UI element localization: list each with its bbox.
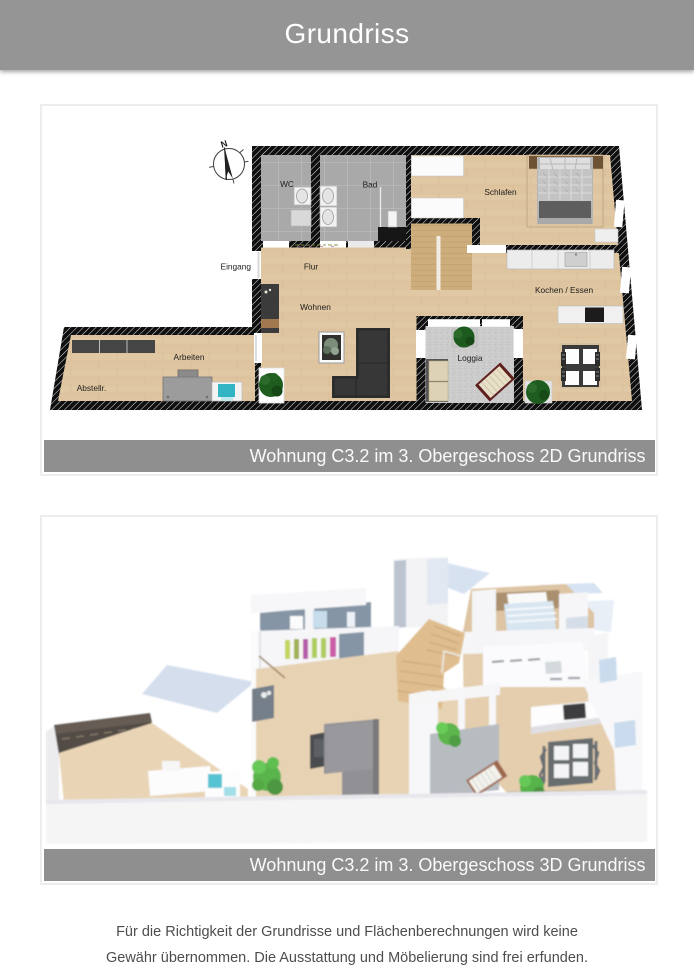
svg-text:WC: WC (280, 179, 294, 189)
svg-text:Schlafen: Schlafen (484, 187, 517, 197)
svg-text:N: N (219, 138, 228, 150)
svg-text:Wohnen: Wohnen (300, 302, 331, 312)
svg-text:Abstellr.: Abstellr. (77, 383, 107, 393)
svg-text:Arbeiten: Arbeiten (174, 352, 205, 362)
svg-text:Eingang: Eingang (221, 262, 252, 272)
svg-text:Kochen / Essen: Kochen / Essen (535, 285, 594, 295)
svg-text:Loggia: Loggia (458, 353, 483, 363)
svg-text:Flur: Flur (304, 262, 319, 272)
svg-text:Bad: Bad (363, 180, 378, 190)
